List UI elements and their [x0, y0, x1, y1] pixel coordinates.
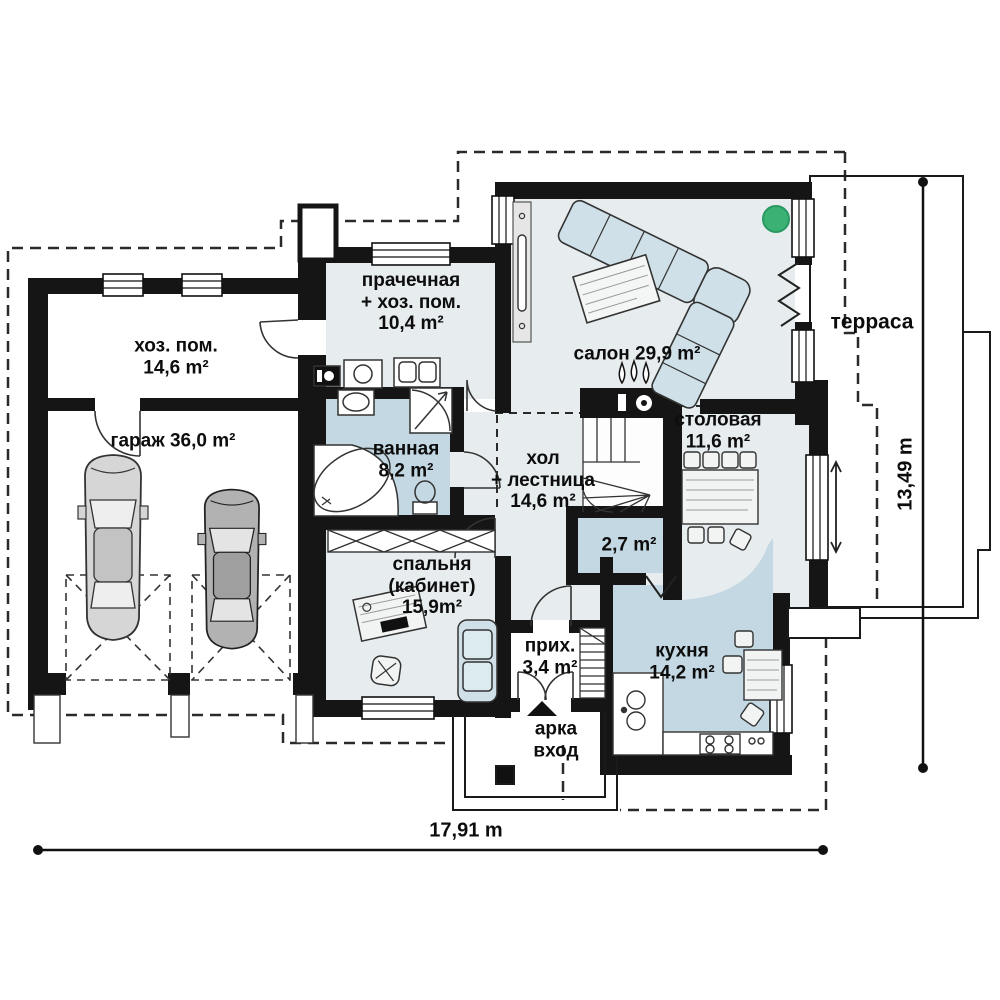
room-label-salon: салон 29,9 m² [573, 343, 700, 365]
utility-name: хоз. пом. [134, 336, 218, 358]
hall-name-2: + лестница [491, 469, 595, 491]
salon-terrace-window-2 [792, 330, 814, 382]
garage-left-wall [28, 278, 48, 710]
bathroom-area: 8,2 m² [373, 460, 440, 482]
laundry-name: прачечная [361, 270, 461, 292]
radiator [513, 202, 531, 342]
hallway-closet [580, 628, 605, 698]
utility-area: 14,6 m² [134, 357, 218, 379]
kitchen-table [744, 650, 782, 700]
laundry-name-2: + хоз. пом. [361, 291, 461, 313]
spine-wall-bottom [298, 355, 326, 717]
kitchen-name: кухня [649, 641, 714, 663]
bedroom-sofa [458, 620, 497, 702]
kitchen-area: 14,2 m² [649, 662, 714, 684]
entrance-name: арка [533, 719, 578, 741]
spine-wall-top [298, 262, 326, 320]
garage-bottom-pier-mid [168, 673, 190, 695]
garage-utility-wall-a [48, 398, 95, 411]
room-label-dining: столовая 11,6 m² [674, 410, 761, 453]
fireplace-glyph-bar [618, 394, 626, 411]
dining-terrace-door [806, 455, 828, 560]
floor-plan: хоз. пом. 14,6 m² гараж 36,0 m² прачечна… [0, 0, 1000, 1000]
garage-contents [66, 455, 290, 680]
room-label-entrance: арка вход [533, 719, 578, 762]
kitchen-chair-2 [735, 631, 753, 647]
bedroom-top-wall [310, 515, 495, 530]
wardrobe [328, 530, 495, 552]
garage-name: гараж 36,0 m² [111, 430, 236, 452]
entrance-arrow-icon [527, 701, 557, 716]
porch-pillar [496, 766, 514, 784]
office-chair [370, 655, 402, 687]
garage-door-footings [34, 695, 313, 743]
hallway-area: 3,4 m² [523, 657, 578, 679]
roof-outline-right [845, 152, 877, 601]
salon-terrace-window-1 [792, 199, 814, 257]
dining-right-wall-b [810, 558, 828, 610]
car-2 [198, 490, 266, 649]
hallway-name: прих. [523, 636, 578, 658]
hall-name: хол [491, 448, 595, 470]
room-label-garage: гараж 36,0 m² [111, 430, 236, 452]
chimney [300, 206, 336, 260]
garage-window-1 [103, 274, 143, 296]
garage-top-wall [28, 278, 315, 294]
salon-left-window [492, 196, 514, 244]
room-label-hall: хол + лестница 14,6 m² [491, 448, 595, 513]
terrace-name: терраса [831, 311, 914, 333]
salon-name: салон 29,9 m² [573, 343, 700, 365]
storage-area: 2,7 m² [602, 534, 657, 556]
garage-utility-wall-b [140, 398, 315, 411]
utility-laundry-door [260, 320, 298, 358]
car-1 [78, 455, 148, 640]
garage-bottom-pier-left [28, 673, 66, 695]
bedroom-name: спальня [388, 554, 475, 576]
bathroom-right-wall-b [450, 487, 464, 517]
fireplace-glyph-dot [641, 400, 647, 406]
entrance-wall-a [495, 698, 520, 712]
shower [410, 388, 452, 433]
salon-top-wall [495, 182, 812, 199]
dining-name: столовая [674, 410, 761, 432]
hall-area: 14,6 m² [491, 491, 595, 513]
height-dimension-label: 13,49 m [895, 437, 918, 510]
room-label-hallway: прих. 3,4 m² [523, 636, 578, 679]
room-label-kitchen: кухня 14,2 m² [649, 641, 714, 684]
room-label-utility: хоз. пом. 14,6 m² [134, 336, 218, 379]
dining-right-wall-a [810, 425, 828, 457]
entrance-wall-b [571, 698, 613, 712]
room-label-storage: 2,7 m² [602, 534, 657, 556]
boiler-dial [324, 371, 334, 381]
kitchen-bottom-wall [600, 755, 792, 775]
bathroom-name: ванная [373, 439, 440, 461]
laundry-area: 10,4 m² [361, 313, 461, 335]
boiler-slot [317, 370, 322, 382]
room-label-laundry: прачечная + хоз. пом. 10,4 m² [361, 270, 461, 335]
hallway-top-wall-a [495, 620, 533, 633]
width-dimension-label: 17,91 m [429, 820, 502, 843]
laundry-window [372, 243, 450, 265]
bedroom-area: 15,9m² [388, 597, 475, 619]
side-landing [788, 608, 860, 638]
terrace-door-arrow [831, 462, 841, 552]
kitchen-corner-counter [613, 673, 663, 755]
room-label-bathroom: ванная 8,2 m² [373, 439, 440, 482]
room-label-terrace: терраса [831, 311, 914, 333]
plant-icon [763, 206, 789, 232]
room-label-bedroom: спальня (кабинет) 15,9m² [388, 554, 475, 619]
kitchen-faucet [622, 708, 627, 713]
dining-area: 11,6 m² [674, 431, 761, 453]
entrance-name-2: вход [533, 740, 578, 762]
garage-window-2 [182, 274, 222, 296]
washbasin [338, 390, 374, 415]
terrace-deck [810, 176, 963, 607]
bedroom-name-2: (кабинет) [388, 575, 475, 597]
kitchen-chair-1 [723, 656, 742, 673]
bedroom-window [362, 697, 434, 719]
washing-machine [344, 360, 382, 388]
